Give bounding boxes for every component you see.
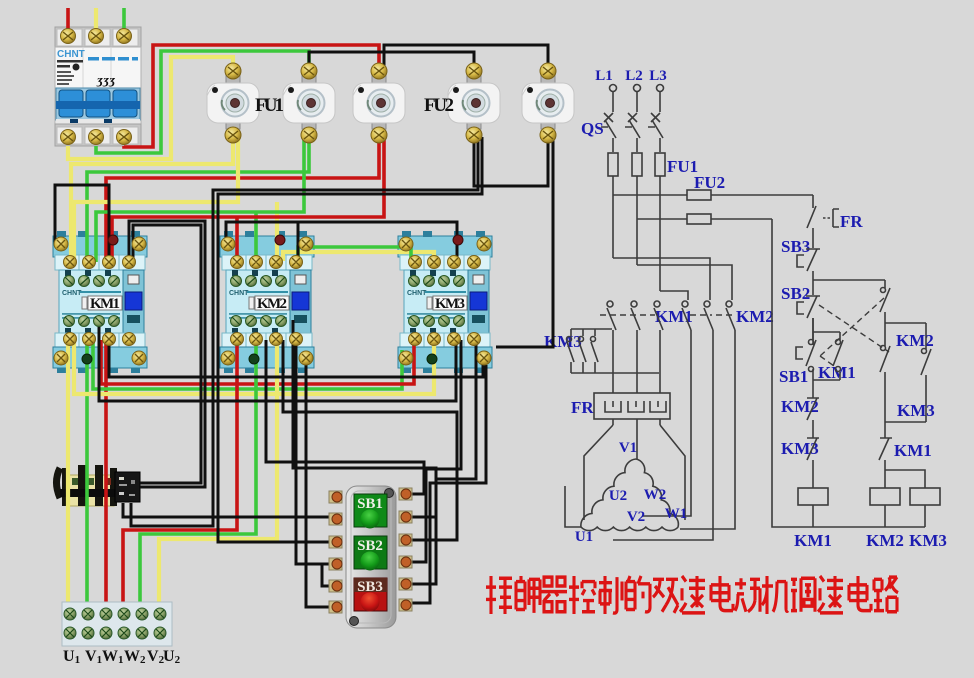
- svg-text:FR: FR: [571, 398, 594, 417]
- svg-text:L3: L3: [649, 68, 667, 84]
- svg-text:KM3: KM3: [897, 401, 935, 420]
- svg-text:FU2: FU2: [694, 173, 725, 192]
- svg-text:KM3: KM3: [909, 531, 947, 550]
- svg-text:SB2: SB2: [781, 284, 810, 303]
- svg-text:KM2: KM2: [896, 331, 934, 350]
- svg-text:KM1: KM1: [894, 441, 932, 460]
- svg-text:FU1: FU1: [255, 95, 284, 116]
- svg-text:SB2: SB2: [357, 538, 383, 554]
- svg-text:W2: W2: [644, 487, 667, 503]
- svg-text:V1: V1: [619, 440, 637, 456]
- svg-text:KM3: KM3: [435, 296, 465, 312]
- svg-text:KM1: KM1: [818, 363, 856, 382]
- svg-text:QS: QS: [581, 119, 604, 138]
- svg-text:KM3: KM3: [781, 439, 819, 458]
- svg-text:U2: U2: [609, 488, 627, 504]
- svg-text:SB3: SB3: [781, 237, 810, 256]
- svg-text:L2: L2: [625, 68, 643, 84]
- svg-text:SB1: SB1: [779, 367, 808, 386]
- svg-text:U1: U1: [575, 529, 593, 545]
- svg-text:KM1: KM1: [90, 296, 120, 312]
- svg-text:L1: L1: [595, 68, 613, 84]
- svg-text:CHNT: CHNT: [57, 49, 85, 60]
- svg-text:KM2: KM2: [257, 296, 287, 312]
- svg-text:SB1: SB1: [357, 496, 383, 512]
- svg-text:FR: FR: [840, 212, 863, 231]
- svg-text:ʒʒʒ: ʒʒʒ: [96, 72, 115, 87]
- svg-text:KM1: KM1: [794, 531, 832, 550]
- svg-text:SB3: SB3: [357, 579, 383, 595]
- svg-text:FU2: FU2: [424, 95, 454, 116]
- svg-text:V2: V2: [627, 509, 645, 525]
- svg-text:KM2: KM2: [866, 531, 904, 550]
- svg-text:KM2: KM2: [736, 307, 774, 326]
- svg-text:W1: W1: [665, 506, 688, 522]
